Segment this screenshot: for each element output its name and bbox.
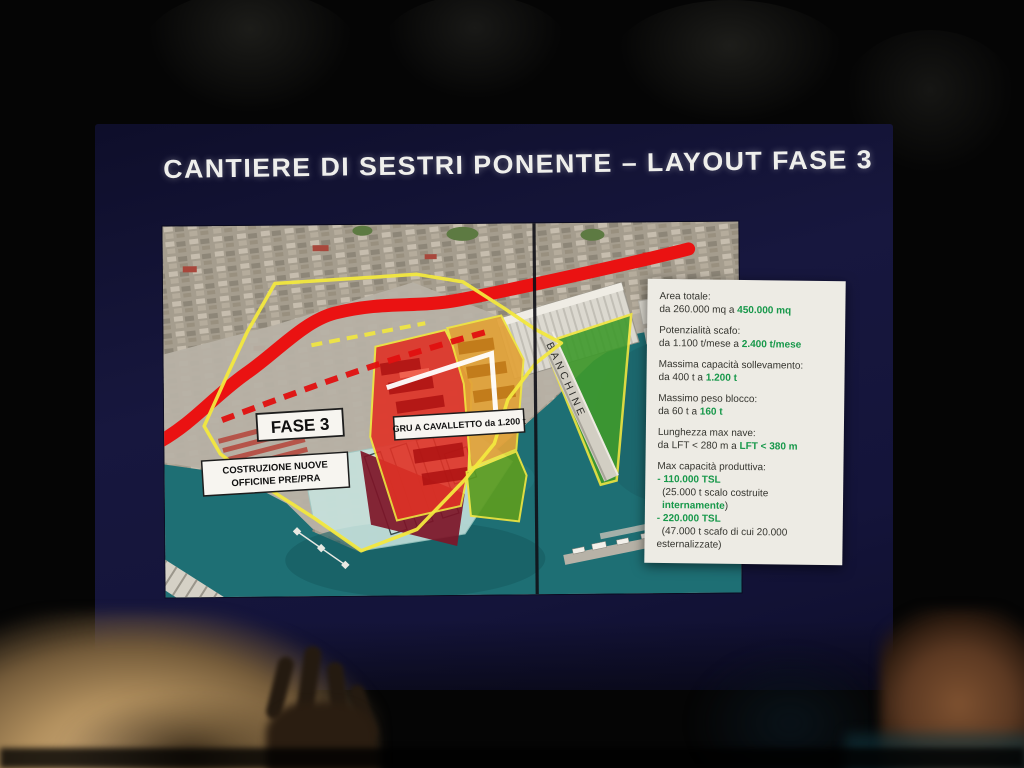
conference-photo: CANTIERE DI SESTRI PONENTE – LAYOUT FASE… xyxy=(0,0,1024,768)
projection-screen: CANTIERE DI SESTRI PONENTE – LAYOUT FASE… xyxy=(95,124,893,690)
stat-nave: Lunghezza max nave: da LFT < 280 m a LFT… xyxy=(658,426,834,454)
stat-scafo: Potenzialità scafo: da 1.100 t/mese a 2.… xyxy=(659,324,835,352)
slide-title: CANTIERE DI SESTRI PONENTE – LAYOUT FASE… xyxy=(163,144,864,185)
stage-light-icon xyxy=(140,0,360,120)
stat-area: Area totale: da 260.000 mq a 450.000 mq xyxy=(659,290,835,318)
screen-bottom-shadow xyxy=(95,620,893,690)
audience-head-left-shadow xyxy=(60,690,320,768)
stat-blocco: Massimo peso blocco: da 60 t a 160 t xyxy=(658,392,834,420)
stage-light-icon xyxy=(380,0,570,105)
svg-text:FASE 3: FASE 3 xyxy=(270,415,330,438)
bottom-edge xyxy=(0,748,1024,768)
stage-light-icon xyxy=(610,0,850,130)
audience-head-right xyxy=(880,608,1024,768)
stat-produttiva: Max capacità produttiva: - 110.000 TSL (… xyxy=(656,460,833,553)
fase3-label: FASE 3 xyxy=(256,409,343,441)
info-panel: Area totale: da 260.000 mq a 450.000 mq … xyxy=(644,279,845,565)
stat-sollevamento: Massima capacità sollevamento: da 400 t … xyxy=(658,358,834,386)
audience-palm xyxy=(266,702,376,768)
bottom-teal-band xyxy=(845,733,1024,768)
